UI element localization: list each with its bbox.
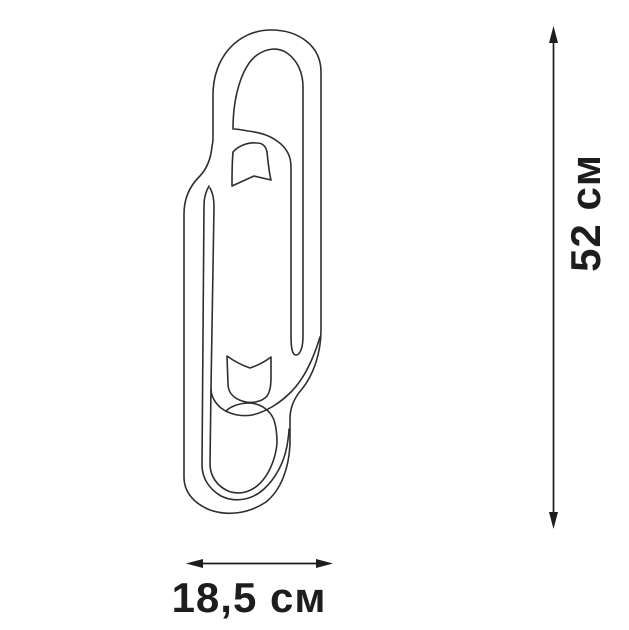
lamp-wire-strip-edge xyxy=(210,188,277,493)
lamp-upper-loop-inner-contour xyxy=(233,49,303,355)
lamp-outer-contour xyxy=(184,30,321,513)
lamp-lower-holder xyxy=(227,356,271,402)
width-dimension-arrow xyxy=(186,559,333,568)
product-dimension-diagram: 52 см 18,5 см xyxy=(0,0,629,630)
lamp-outline-drawing xyxy=(184,30,321,513)
height-dimension-arrow xyxy=(549,26,558,529)
height-dimension-label: 52 см xyxy=(565,13,607,413)
arrow-left-icon xyxy=(186,559,203,568)
width-dimension-label: 18,5 см xyxy=(138,577,360,619)
lamp-technical-drawing xyxy=(0,0,629,630)
arrow-up-icon xyxy=(549,26,558,43)
arrow-right-icon xyxy=(316,559,333,568)
arrow-down-icon xyxy=(549,512,558,529)
lamp-upper-holder xyxy=(232,143,271,186)
